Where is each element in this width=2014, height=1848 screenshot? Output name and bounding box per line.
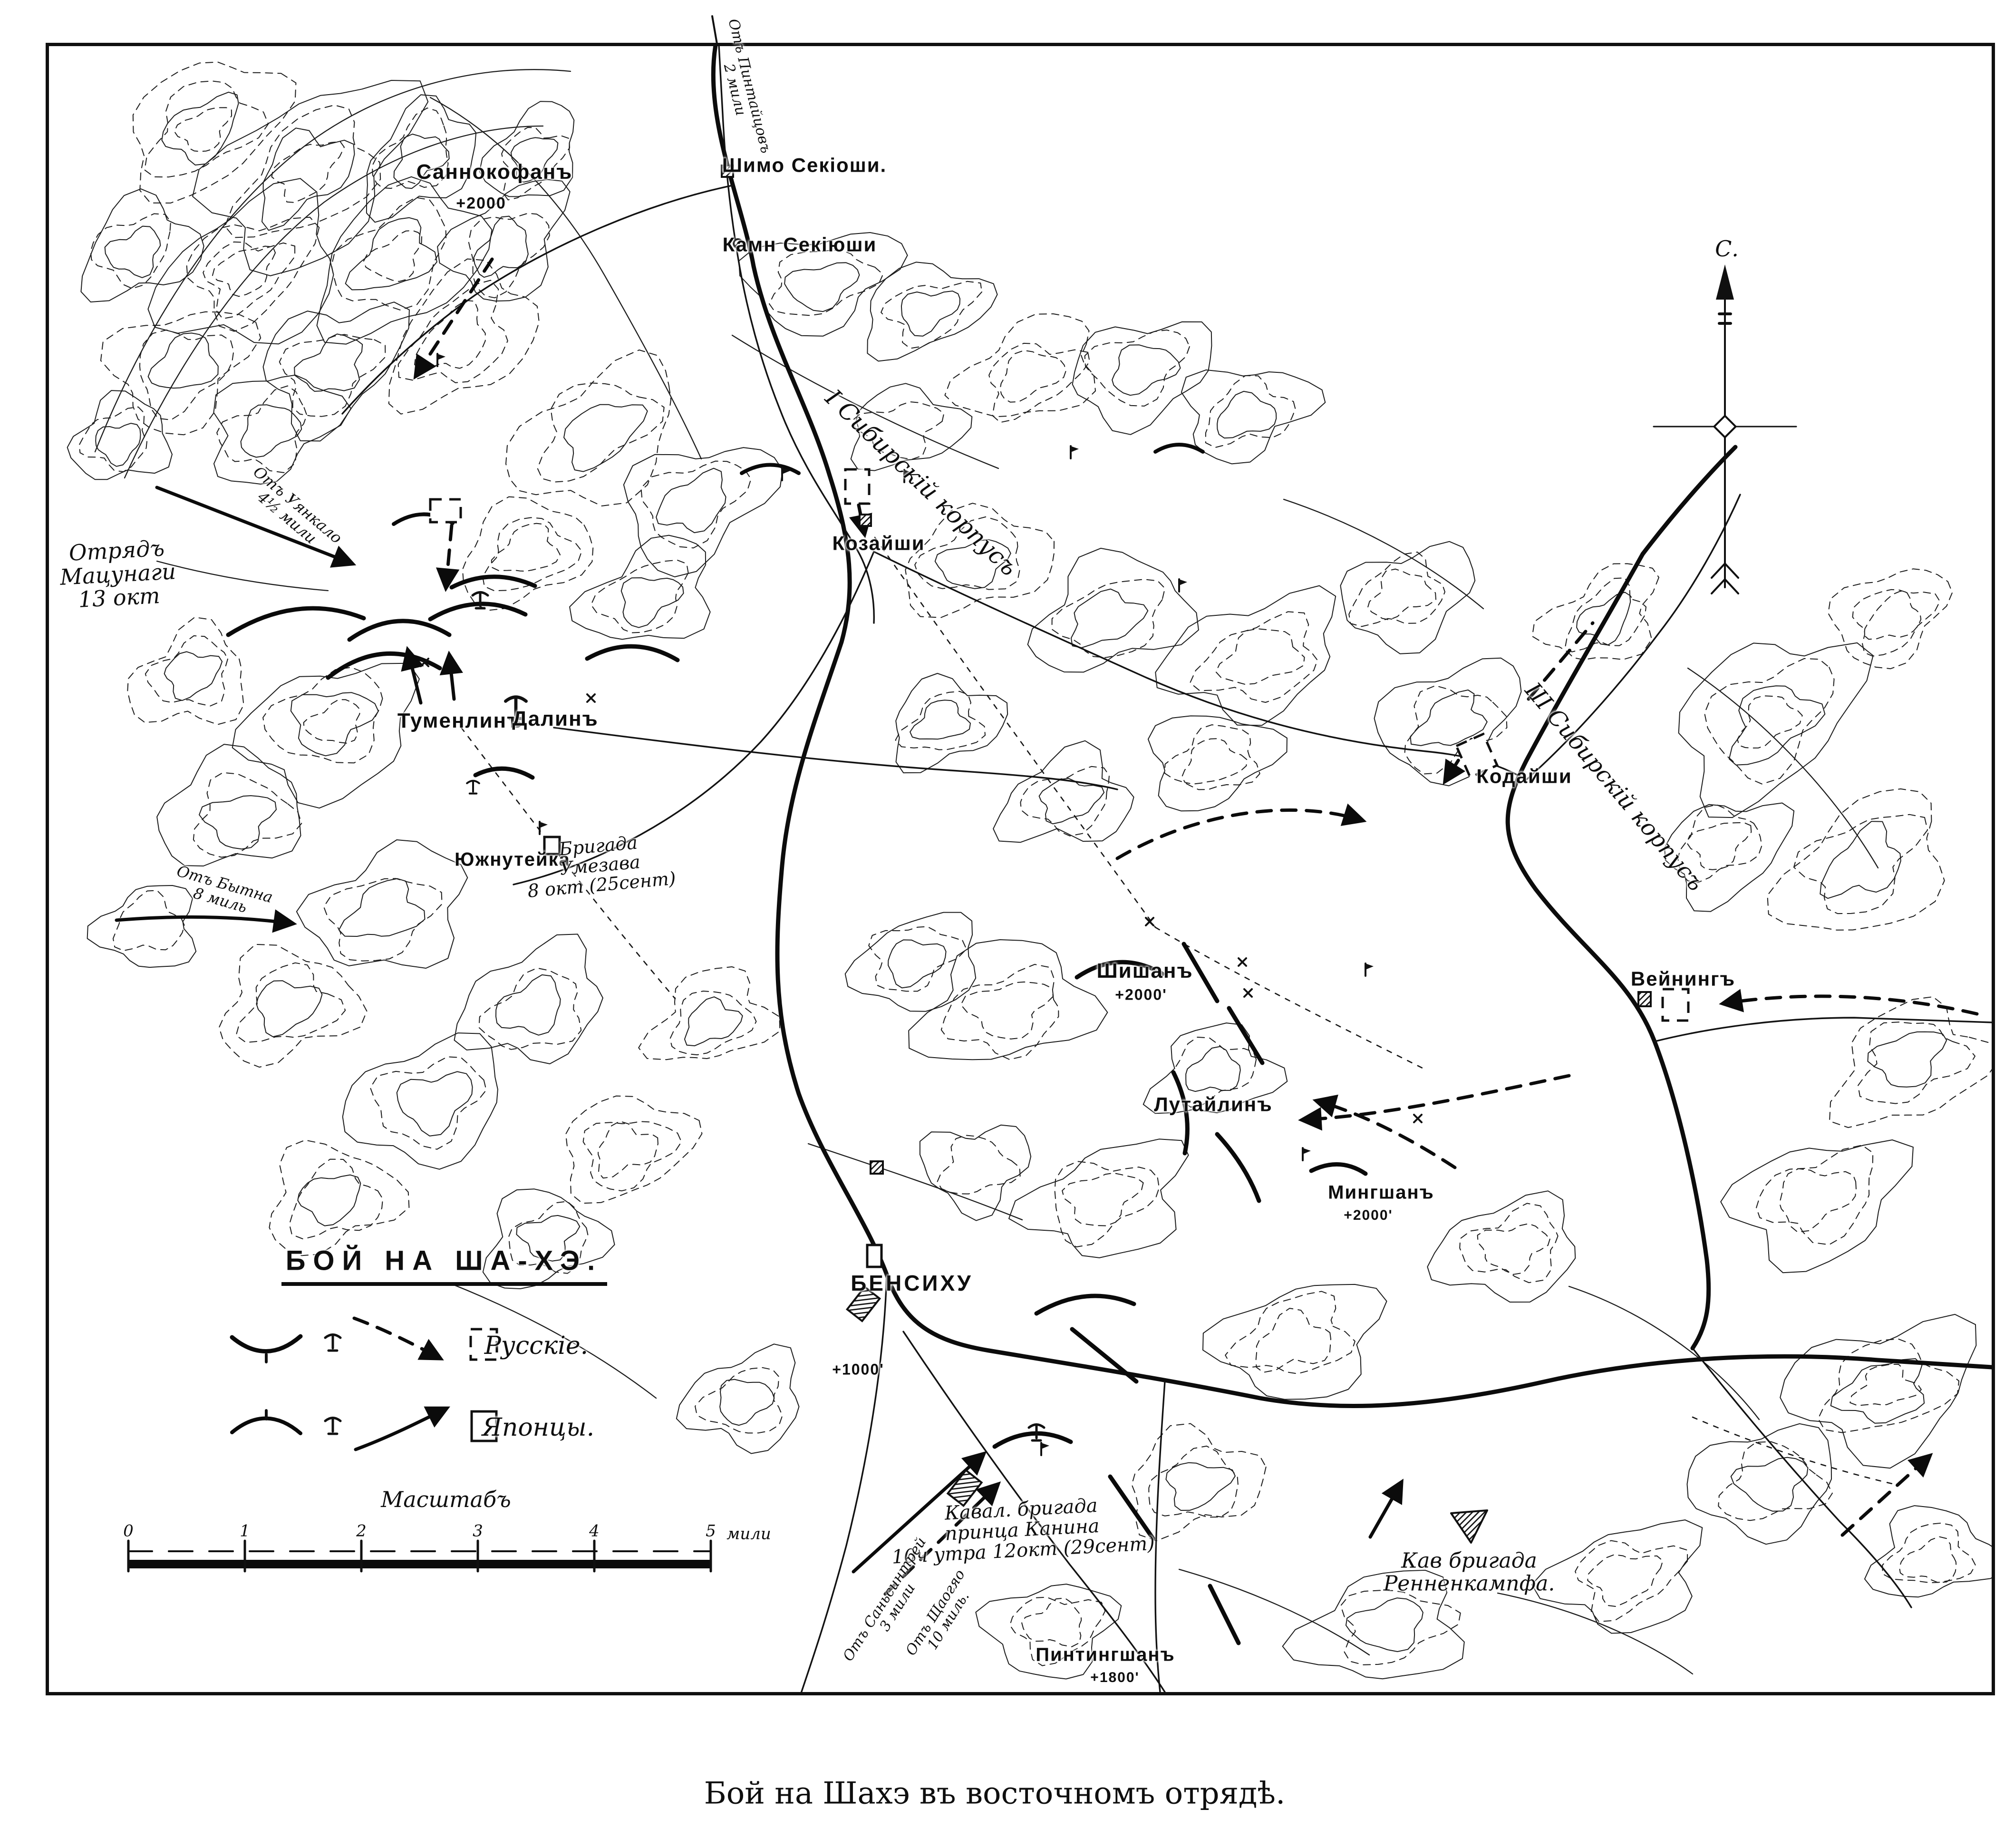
elev-pintingshan: +1800' [1090,1670,1139,1685]
legend-russians-label: Русскіе. [484,1333,588,1359]
elev-shishan: +2000' [1115,987,1167,1003]
place-mingshan: Мингшанъ [1328,1182,1434,1203]
scale-title: Масштабъ [381,1488,511,1512]
place-lutailin: Лутайлинъ [1154,1093,1273,1115]
scale-tick: 0 [123,1523,134,1540]
compass-north-label: С. [1715,237,1739,261]
scale-tick: 2 [356,1523,367,1540]
map-frame [46,43,1995,1695]
place-kodaishi: Кодайши [1476,765,1572,787]
map-caption: Бой на Шахэ въ восточномъ отрядѣ. [704,1777,1286,1810]
scale-tick: 4 [589,1523,600,1540]
legend-japanese-label: Японцы. [482,1414,594,1441]
place-tumenlin: Туменлинъ [397,710,523,732]
place-shishan: Шишанъ [1096,960,1193,982]
unit-label-line: Кав бригада [1384,1549,1555,1572]
elev-bensihu: +1000' [832,1362,884,1378]
scale-tick: 3 [473,1523,483,1540]
place-bensihu: БЕНСИХУ [851,1272,973,1295]
legend-title: БОЙ НА ША-ХЭ. [286,1246,603,1276]
legend-title-underline [281,1282,607,1286]
scale-unit: мили [726,1526,771,1543]
place-sannokofan: Саннокофанъ [416,161,573,184]
scale-tick: 1 [240,1523,250,1540]
place-pintingshan: Пинтингшанъ [1036,1644,1175,1665]
unit-brigada-umezawa: Бригада Умезава 8 окт (25сент) [523,830,677,901]
scale-tick: 5 [706,1523,716,1540]
elev-mingshan: +2000' [1344,1208,1393,1223]
unit-otryad-matsunagi: Отрядъ Мацунаги 13 окт [58,536,177,613]
place-kamn-sekiushi: Камн Секіюши [723,233,877,255]
unit-kav-rennenkampf: Кав бригада Ренненкампфа. [1384,1549,1555,1595]
map-page: Саннокофанъ +2000 Шимо Секіоши. Камн Сек… [0,0,2014,1848]
place-kozaishi: Козайши [832,532,925,554]
place-dalin: Далинъ [512,708,598,730]
elev-sannokofan: +2000 [456,195,506,213]
place-veining: Вейнингъ [1631,968,1735,989]
unit-label-line: Ренненкампфа. [1384,1572,1555,1595]
